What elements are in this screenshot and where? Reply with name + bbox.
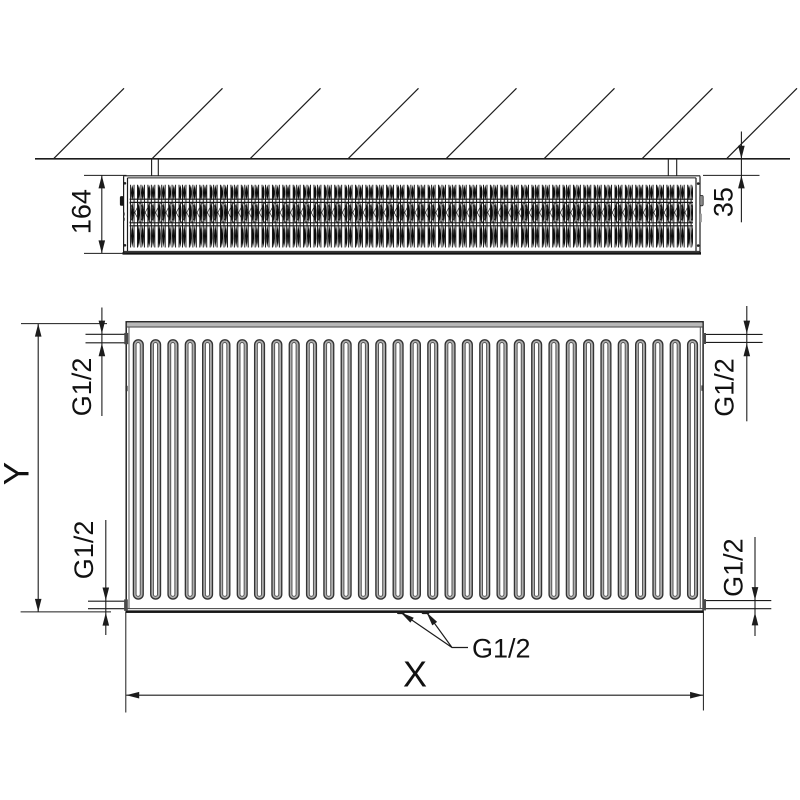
svg-text:Y: Y <box>0 462 37 485</box>
svg-text:G1/2: G1/2 <box>69 521 99 580</box>
svg-text:X: X <box>403 654 427 695</box>
svg-text:G1/2: G1/2 <box>67 358 97 417</box>
svg-text:G1/2: G1/2 <box>709 358 739 417</box>
svg-text:164: 164 <box>67 189 97 234</box>
svg-text:G1/2: G1/2 <box>718 538 748 597</box>
svg-text:G1/2: G1/2 <box>472 634 531 664</box>
svg-text:35: 35 <box>708 187 738 217</box>
